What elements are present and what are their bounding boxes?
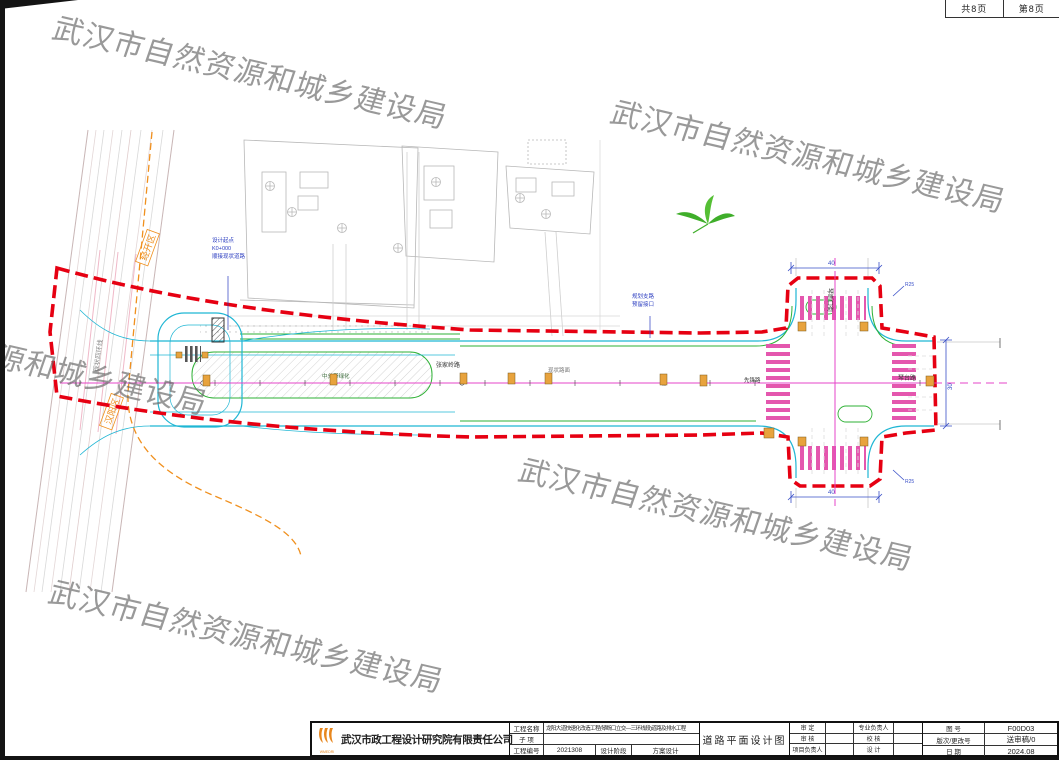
note-line: K0+000	[212, 246, 231, 252]
review-label: 审 核	[790, 734, 826, 744]
project-name-value: 龙阳大道快速化改造工程(琴断口立交—三环线段)道路及排水工程	[544, 723, 699, 733]
dim-south: 40	[828, 490, 835, 496]
note-line: 预留接口	[632, 300, 654, 308]
dim-north: 40	[828, 261, 835, 267]
title-block: WMEDRI 武汉市政工程设计研究院有限责任公司 工程名称 龙阳大道快速化改造工…	[310, 721, 1059, 757]
road-label-east: 琴台路	[898, 374, 916, 382]
design-label: 设 计	[854, 744, 894, 755]
page-current: 第8页	[1003, 0, 1059, 17]
structure-block	[212, 318, 224, 342]
stage-label: 设计阶段	[596, 745, 632, 755]
note-line: 设计起点	[212, 236, 235, 244]
subitem-label: 子 项	[510, 734, 544, 744]
rev-label: 版次/更改号	[923, 734, 985, 745]
road-plan-drawing: 现状四环线 经开区 汉阳区	[0, 0, 1059, 760]
pavement-label: 现状路面	[548, 366, 571, 374]
rev-value: 送审稿/0	[985, 734, 1057, 745]
road-label-north: 琴断口街	[826, 288, 834, 312]
review-value	[826, 734, 854, 744]
project-name-label: 工程名称	[510, 723, 544, 733]
sheet-edge-corner	[0, 0, 78, 9]
company-name: 武汉市政工程设计研究院有限责任公司	[341, 732, 513, 747]
pm-value	[826, 744, 854, 755]
dim-radius-ne: R25	[905, 282, 914, 288]
drawing-title: 道路平面设计图	[700, 723, 790, 755]
design-value	[894, 744, 922, 755]
subitem-value	[544, 734, 699, 744]
project-no-label: 工程编号	[510, 745, 544, 755]
check-label: 校 核	[854, 734, 894, 744]
district-boundary: 经开区 汉阳区	[100, 132, 301, 556]
note-line: 顺接现状道路	[212, 252, 246, 260]
page-number-box: 共8页 第8页	[945, 0, 1059, 18]
project-no-value: 2021308	[544, 745, 596, 755]
road-label-west: 先锋路	[744, 376, 761, 384]
signature-cell: 审 定 专业负责人 审 核 校 核 项目负责人 设 计	[790, 723, 923, 755]
check-value	[894, 734, 922, 744]
company-logo-icon	[316, 724, 338, 746]
median-islands: 中分带绿化	[192, 322, 460, 398]
approve-value	[826, 723, 854, 733]
road-label-center: 张家岭路	[436, 361, 460, 369]
existing-expressway-corridor: 现状四环线	[26, 130, 174, 592]
pages-total: 共8页	[946, 0, 1003, 17]
pm-label: 项目负责人	[790, 744, 826, 755]
company-cell: WMEDRI 武汉市政工程设计研究院有限责任公司	[312, 723, 510, 755]
discipline-lead-label: 专业负责人	[854, 723, 894, 733]
approve-label: 审 定	[790, 723, 826, 733]
north-leaf-symbol	[676, 195, 735, 233]
fig-no-label: 图 号	[923, 723, 985, 733]
dim-east: 30	[948, 383, 954, 390]
project-info-cell: 工程名称 龙阳大道快速化改造工程(琴断口立交—三环线段)道路及排水工程 子 项 …	[510, 723, 700, 755]
existing-buildings	[230, 140, 620, 336]
note-line: 规划支路	[632, 292, 655, 300]
date-label: 日 期	[923, 746, 985, 756]
date-value: 2024.08	[985, 746, 1057, 756]
sheet-edge-left	[0, 0, 5, 760]
company-logo-text: WMEDRI	[316, 751, 338, 754]
dim-radius-se: R25	[905, 479, 914, 485]
discipline-lead-value	[894, 723, 922, 733]
drawing-meta-cell: 图 号 F00D03 版次/更改号 送审稿/0 日 期 2024.08	[923, 723, 1057, 755]
stage-value: 方案设计	[632, 745, 699, 755]
fig-no-value: F00D03	[985, 723, 1057, 733]
